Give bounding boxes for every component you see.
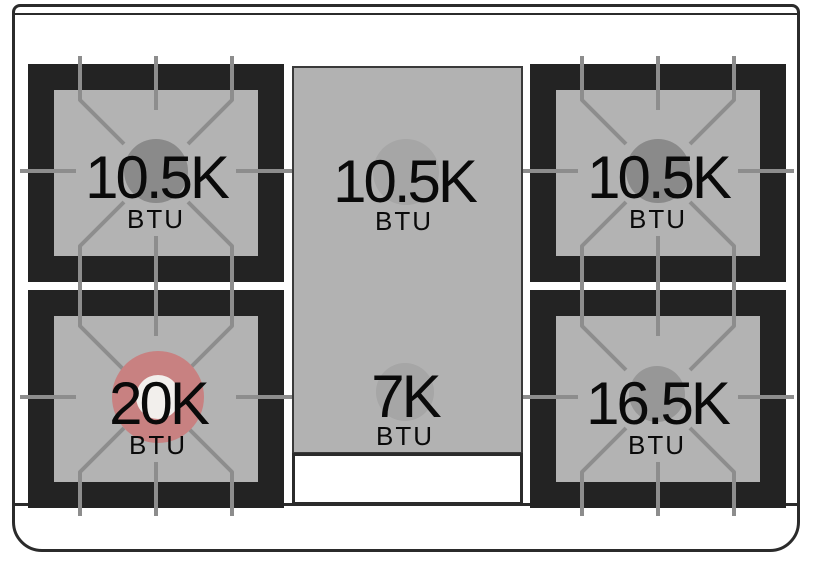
btu-value: 20K — [109, 370, 210, 437]
btu-unit: BTU — [375, 206, 433, 236]
btu-unit: BTU — [629, 204, 687, 234]
burner-top-left: 10.5K BTU — [28, 64, 284, 282]
btu-value: 7K — [371, 363, 441, 430]
btu-value: 16.5K — [586, 370, 731, 437]
btu-unit: BTU — [127, 204, 185, 234]
range-back-edge-line — [14, 13, 798, 15]
griddle-drip-tray — [294, 455, 522, 504]
btu-value: 10.5K — [333, 148, 478, 215]
btu-value: 10.5K — [587, 144, 732, 211]
btu-unit: BTU — [376, 421, 434, 451]
burner-bottom-left: 20K BTU — [28, 290, 284, 508]
btu-unit: BTU — [628, 430, 686, 460]
burner-bottom-right: 16.5K BTU — [530, 290, 786, 508]
btu-value: 10.5K — [85, 144, 230, 211]
btu-unit: BTU — [129, 430, 187, 460]
center-griddle: 10.5K BTU 7K BTU — [292, 66, 523, 505]
burner-top-right: 10.5K BTU — [530, 64, 786, 282]
cooktop-diagram: 10.5K BTU 10.5K BTU 20K BTU 16.5K BTU 10… — [0, 0, 816, 568]
